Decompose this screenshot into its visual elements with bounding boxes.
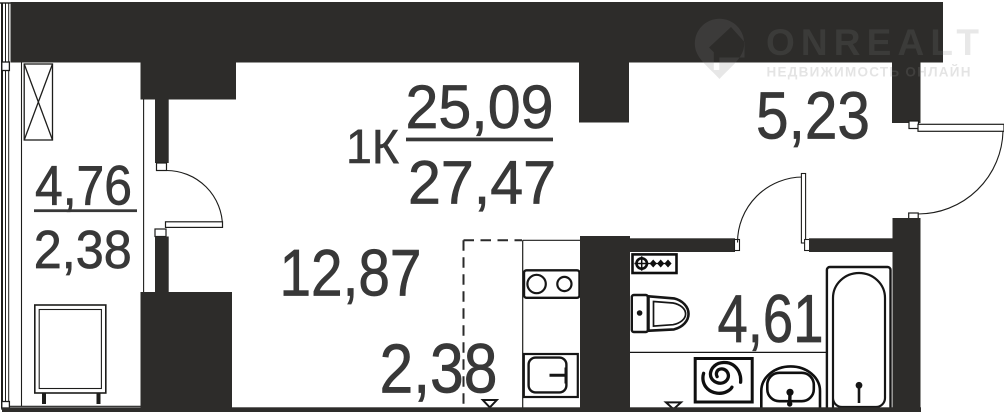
svg-text:5,23: 5,23 <box>756 78 870 153</box>
svg-text:25,09: 25,09 <box>406 73 554 141</box>
svg-text:НЕДВИЖИМОСТЬ ОНЛАЙН: НЕДВИЖИМОСТЬ ОНЛАЙН <box>767 65 971 80</box>
svg-text:12,87: 12,87 <box>280 236 422 310</box>
svg-text:1К: 1К <box>346 121 399 174</box>
svg-text:2,38: 2,38 <box>380 330 498 408</box>
svg-text:27,47: 27,47 <box>408 149 556 217</box>
svg-text:2,38: 2,38 <box>34 220 132 280</box>
svg-text:4,76: 4,76 <box>35 154 132 217</box>
svg-text:4,61: 4,61 <box>718 281 824 357</box>
